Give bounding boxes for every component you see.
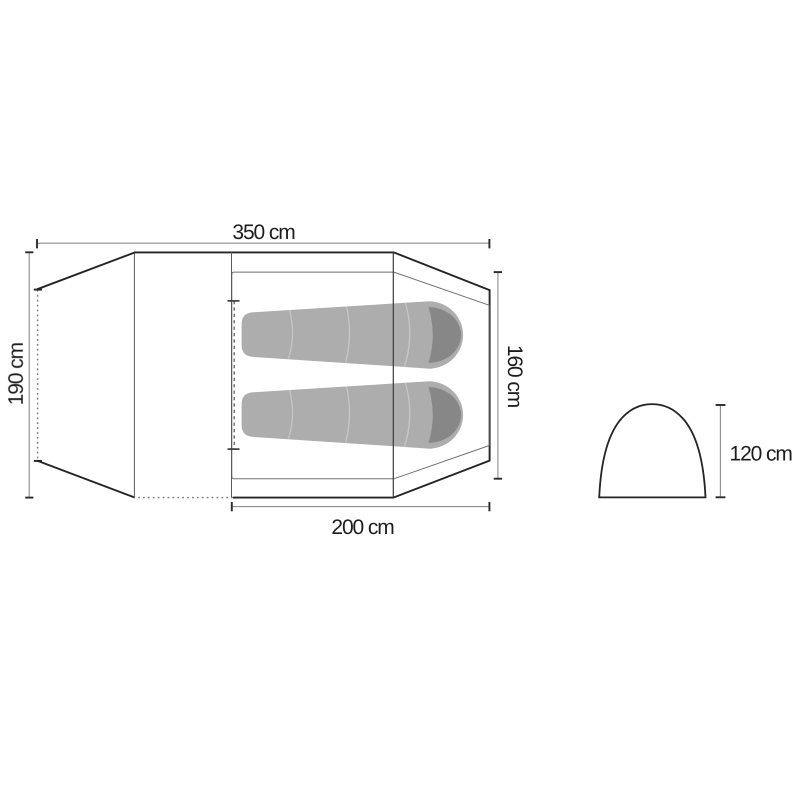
svg-text:200 cm: 200 cm [331,516,394,539]
svg-text:160 cm: 160 cm [503,345,526,408]
svg-text:350 cm: 350 cm [232,221,295,244]
svg-text:120 cm: 120 cm [729,442,792,465]
svg-text:190 cm: 190 cm [5,342,28,405]
